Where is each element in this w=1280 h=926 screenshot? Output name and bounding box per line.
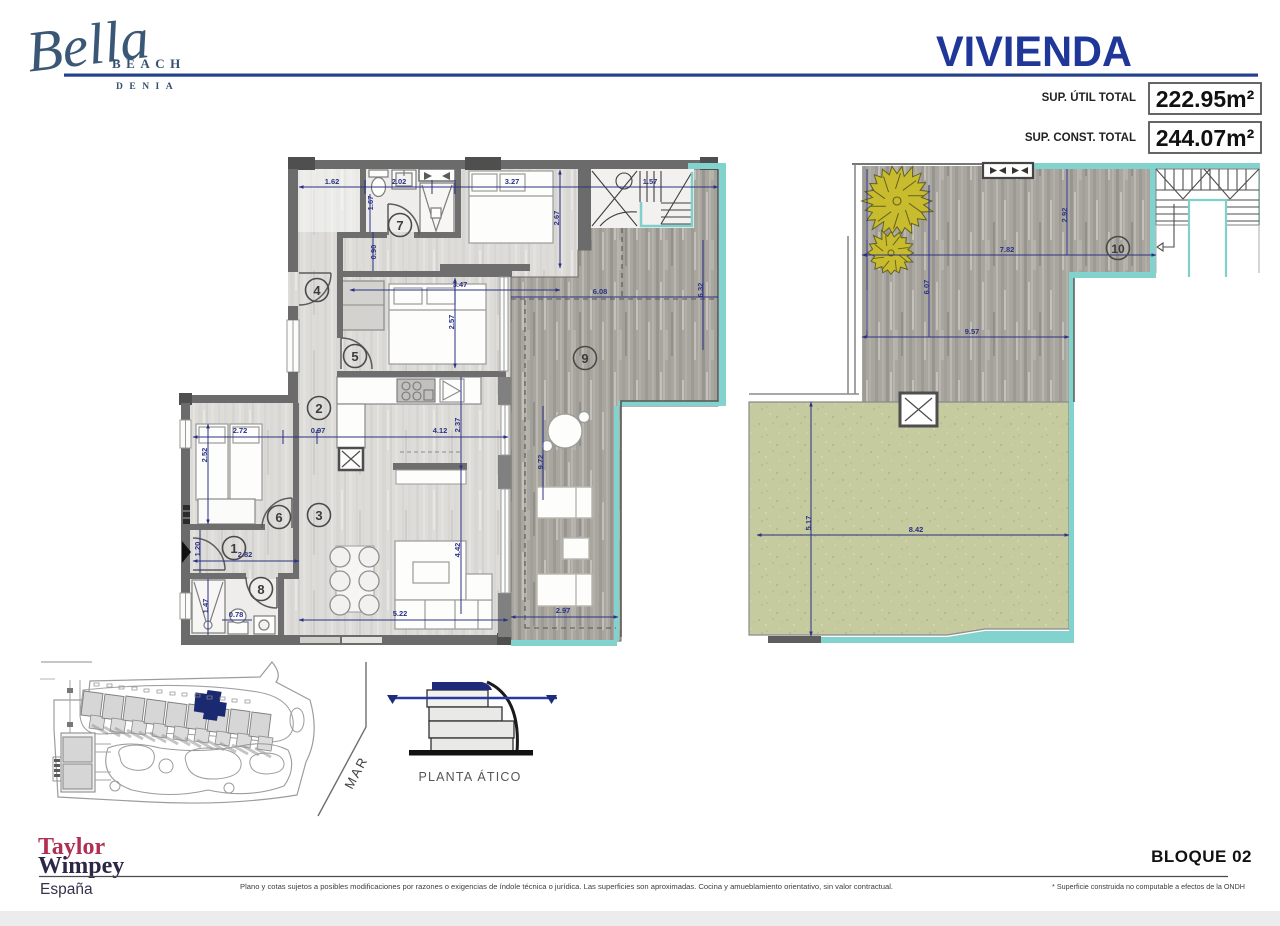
svg-text:6: 6 — [275, 510, 282, 525]
svg-text:BEACH: BEACH — [112, 56, 186, 71]
svg-text:3: 3 — [315, 508, 322, 523]
svg-text:2.67: 2.67 — [552, 211, 561, 226]
svg-text:1.20: 1.20 — [193, 542, 202, 557]
svg-text:1.62: 1.62 — [325, 177, 340, 186]
svg-text:10: 10 — [1111, 242, 1125, 256]
svg-text:VIVIENDA: VIVIENDA — [936, 28, 1132, 76]
svg-text:7.82: 7.82 — [1000, 245, 1015, 254]
svg-text:3.47: 3.47 — [453, 280, 468, 289]
svg-text:3.27: 3.27 — [505, 177, 520, 186]
svg-text:4.42: 4.42 — [453, 543, 462, 558]
svg-text:5.17: 5.17 — [804, 516, 813, 531]
svg-text:5.22: 5.22 — [393, 609, 408, 618]
svg-text:2.92: 2.92 — [1060, 208, 1069, 223]
svg-text:2.57: 2.57 — [447, 315, 456, 330]
svg-text:1: 1 — [230, 541, 237, 556]
svg-text:9: 9 — [581, 351, 588, 366]
svg-text:1.47: 1.47 — [201, 599, 210, 614]
svg-text:4.12: 4.12 — [433, 426, 448, 435]
svg-text:2: 2 — [315, 401, 322, 416]
svg-text:6.32: 6.32 — [696, 283, 705, 298]
svg-text:Wimpey: Wimpey — [38, 853, 124, 879]
svg-text:2.02: 2.02 — [392, 177, 407, 186]
svg-text:6.08: 6.08 — [593, 287, 608, 296]
svg-text:SUP. ÚTIL TOTAL: SUP. ÚTIL TOTAL — [1042, 91, 1136, 104]
svg-text:2.72: 2.72 — [233, 426, 248, 435]
svg-text:8: 8 — [257, 582, 264, 597]
svg-text:* Superficie construida no com: * Superficie construida no computable a … — [1052, 882, 1245, 891]
svg-text:Plano y cotas sujetos a posibl: Plano y cotas sujetos a posibles modific… — [240, 882, 893, 891]
svg-text:9.57: 9.57 — [965, 327, 980, 336]
svg-text:6.07: 6.07 — [922, 280, 931, 295]
svg-text:España: España — [40, 881, 93, 898]
svg-text:0.97: 0.97 — [311, 426, 326, 435]
svg-text:0.78: 0.78 — [229, 610, 244, 619]
svg-text:4: 4 — [313, 283, 321, 298]
svg-text:DENIA: DENIA — [116, 82, 179, 92]
svg-text:BLOQUE 02: BLOQUE 02 — [1151, 847, 1252, 866]
svg-text:1.57: 1.57 — [643, 177, 658, 186]
svg-text:222.95m²: 222.95m² — [1156, 86, 1255, 112]
svg-text:2.37: 2.37 — [453, 418, 462, 433]
svg-text:PLANTA ÁTICO: PLANTA ÁTICO — [418, 769, 521, 784]
svg-text:2.97: 2.97 — [556, 606, 571, 615]
svg-text:SUP. CONST. TOTAL: SUP. CONST. TOTAL — [1025, 132, 1136, 144]
svg-text:2.52: 2.52 — [200, 448, 209, 463]
svg-text:0.90: 0.90 — [369, 245, 378, 260]
svg-text:5: 5 — [351, 349, 358, 364]
svg-text:7: 7 — [396, 218, 403, 233]
svg-text:244.07m²: 244.07m² — [1156, 125, 1255, 151]
svg-text:9.72: 9.72 — [536, 455, 545, 470]
svg-text:8.42: 8.42 — [909, 525, 924, 534]
svg-text:1.67: 1.67 — [366, 196, 375, 211]
